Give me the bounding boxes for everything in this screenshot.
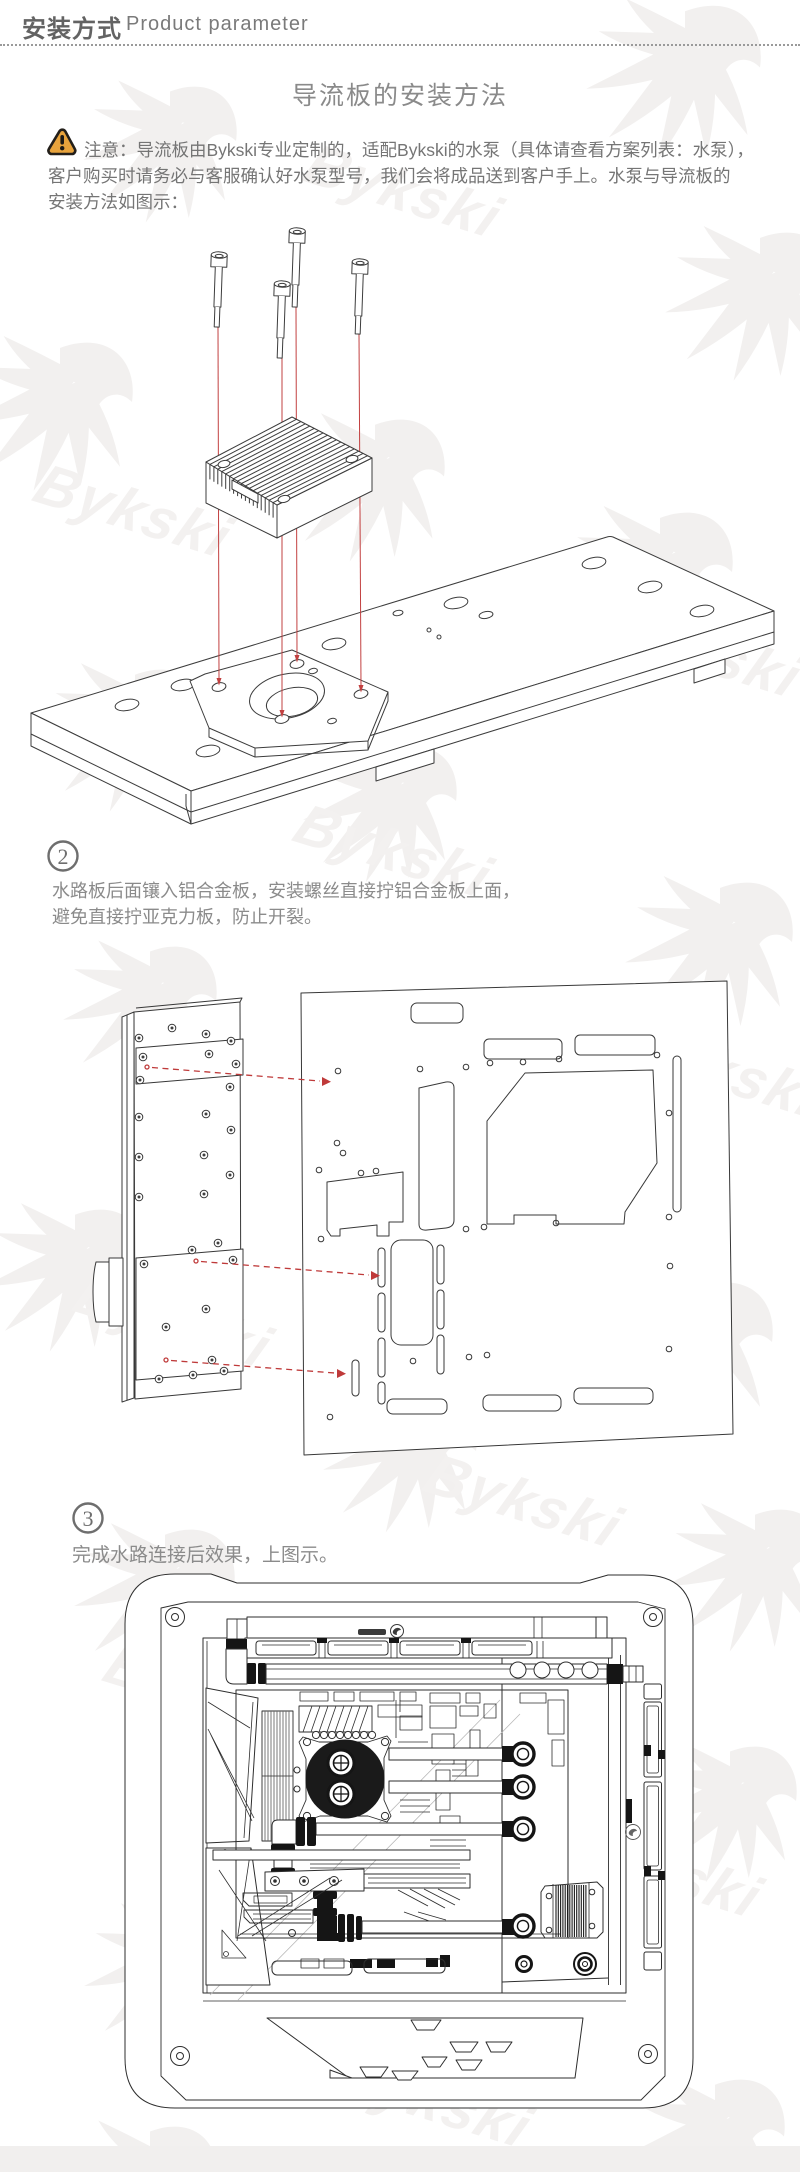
svg-text:3: 3 [83,1506,94,1531]
svg-text:2: 2 [58,844,69,869]
